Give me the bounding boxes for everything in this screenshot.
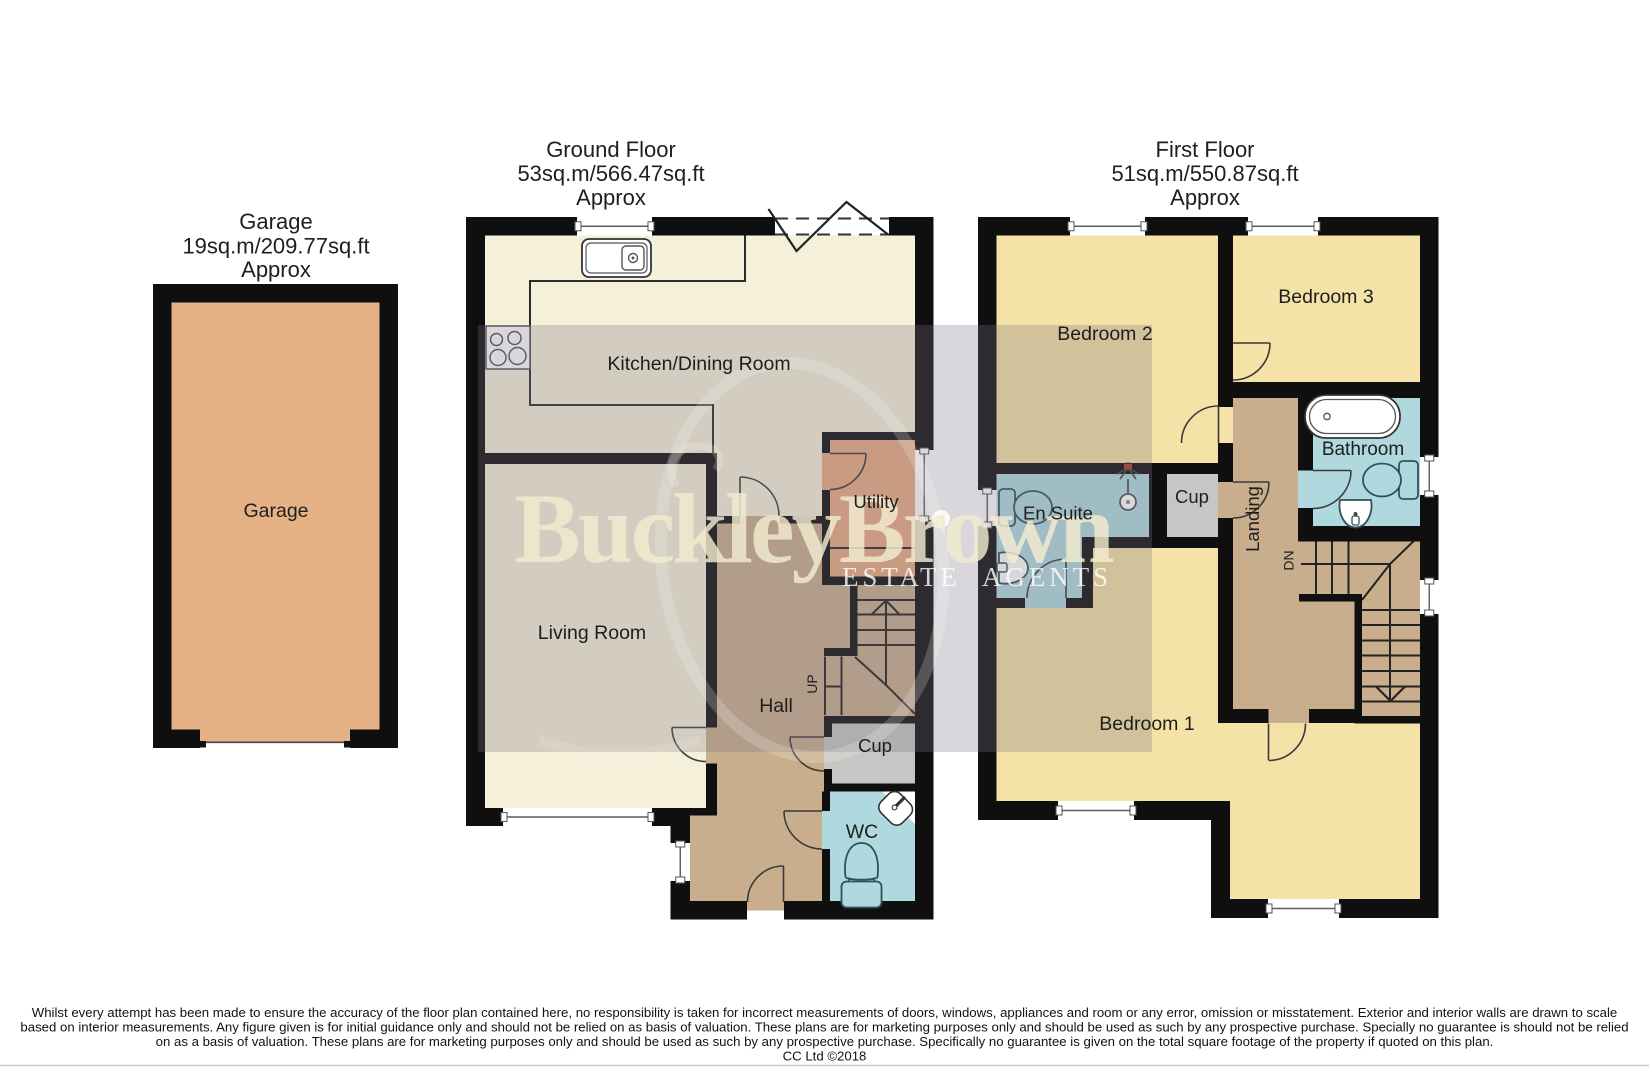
- svg-text:Garage: Garage: [243, 500, 308, 522]
- svg-text:DN: DN: [1281, 550, 1297, 570]
- svg-text:ESTATE AGENTS: ESTATE AGENTS: [842, 562, 1112, 592]
- svg-text:on as a basis of valuation. Th: on as a basis of valuation. These plans …: [156, 1034, 1494, 1049]
- svg-text:based on interior measurements: based on interior measurements. Any figu…: [20, 1020, 1628, 1035]
- svg-text:Garage: Garage: [239, 209, 312, 234]
- svg-text:Approx: Approx: [241, 257, 311, 282]
- svg-text:Cup: Cup: [1175, 486, 1209, 507]
- svg-text:Bedroom 1: Bedroom 1: [1099, 713, 1194, 735]
- svg-text:Ground Floor: Ground Floor: [546, 137, 676, 162]
- svg-text:Cup: Cup: [858, 735, 892, 756]
- svg-text:Landing: Landing: [1242, 486, 1263, 552]
- svg-text:Approx: Approx: [1170, 185, 1240, 210]
- svg-text:WC: WC: [846, 821, 879, 843]
- svg-text:51sq.m/550.87sq.ft: 51sq.m/550.87sq.ft: [1111, 161, 1298, 186]
- svg-text:UP: UP: [804, 674, 820, 693]
- svg-text:Bedroom 3: Bedroom 3: [1278, 286, 1373, 308]
- svg-text:Hall: Hall: [759, 695, 793, 717]
- svg-text:Whilst every attempt has been: Whilst every attempt has been made to en…: [32, 1005, 1617, 1020]
- svg-text:19sq.m/209.77sq.ft: 19sq.m/209.77sq.ft: [182, 234, 369, 259]
- svg-text:Bedroom 2: Bedroom 2: [1057, 323, 1152, 345]
- svg-text:Living Room: Living Room: [538, 622, 646, 644]
- svg-text:Approx: Approx: [576, 185, 646, 210]
- svg-text:Kitchen/Dining Room: Kitchen/Dining Room: [607, 353, 790, 375]
- svg-text:CC Ltd ©2018: CC Ltd ©2018: [783, 1049, 867, 1064]
- svg-text:53sq.m/566.47sq.ft: 53sq.m/566.47sq.ft: [517, 161, 704, 186]
- svg-text:En Suite: En Suite: [1023, 503, 1093, 524]
- svg-text:First Floor: First Floor: [1156, 137, 1255, 162]
- svg-text:Utility: Utility: [853, 491, 899, 512]
- svg-text:Bathroom: Bathroom: [1322, 439, 1404, 460]
